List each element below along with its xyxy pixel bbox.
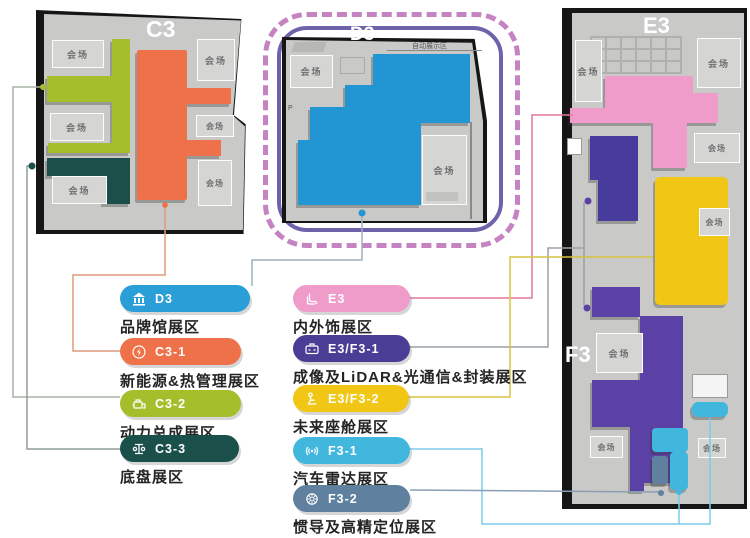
imaging-icon (303, 340, 321, 358)
legend-pill-e3-f3-2[interactable]: E3/F3-2 (293, 385, 409, 412)
venue-box: 会场 (698, 438, 726, 458)
legend-code: E3/F3-1 (328, 342, 379, 356)
venue-box: 会场 (198, 160, 232, 206)
venue-box: 会场 (699, 208, 730, 236)
e3-hall-title: E3 (643, 13, 670, 39)
legend-pill-e3[interactable]: E3 (293, 285, 410, 312)
d3-inner-wall (470, 122, 472, 219)
venue-box: 会场 (290, 55, 333, 88)
legend-label-d3: 品牌馆展区 (120, 316, 200, 337)
legend-code: E3/F3-2 (328, 392, 379, 406)
venue-box: 会场 (52, 176, 107, 204)
venue-box: 会场 (197, 39, 235, 81)
exhibition-floorplan: C3 会场 会场 会场 会场 会场 会场 D3 自动展示区 P 会场 会场 (0, 0, 750, 538)
d3-demo-area-label: 自动展示区 (412, 41, 447, 51)
d3-roof-deco (291, 42, 327, 52)
legend-label-f3-2: 惯导及高精定位展区 (293, 516, 437, 537)
legend-label-e3-f3-1: 成像及LiDAR&光通信&封装展区 (293, 366, 528, 387)
energy-icon (130, 343, 148, 361)
zone-e3-f3-1-imaging-upper (590, 136, 638, 221)
d3-parking-label: P (288, 105, 293, 112)
legend-label-e3-f3-2: 未来座舱展区 (293, 416, 389, 437)
chassis-icon (130, 440, 148, 458)
interior-trim-icon (303, 290, 321, 308)
venue-box: 会场 (196, 115, 234, 137)
f3-white-booth (692, 374, 728, 398)
zone-e3-f3-1-imaging-lower (592, 287, 683, 491)
venue-box: 会场 (52, 40, 104, 68)
c3-hall-title: C3 (146, 16, 175, 43)
legend-pill-d3[interactable]: D3 (120, 285, 250, 312)
legend-pill-f3-1[interactable]: F3-1 (293, 437, 410, 464)
powertrain-icon (130, 395, 148, 413)
legend-code: F3-2 (328, 492, 358, 506)
cockpit-icon (303, 390, 321, 408)
d3-stripe-deco (426, 192, 458, 201)
legend-code: C3-2 (155, 397, 186, 411)
museum-icon (130, 290, 148, 308)
legend-label-e3: 内外饰展区 (293, 316, 373, 337)
legend-code: E3 (328, 292, 345, 306)
legend-code: F3-1 (328, 444, 358, 458)
venue-box: 会场 (50, 113, 104, 141)
e3-white-booth (567, 138, 582, 155)
venue-box: 会场 (694, 133, 740, 163)
f3-hall-title: F3 (565, 342, 591, 368)
legend-label-c3-3: 底盘展区 (120, 466, 184, 487)
d3-hall-title: D3 (350, 24, 374, 46)
d3-booth-outline (340, 57, 365, 74)
zone-e3-f3-2-cockpit (655, 177, 728, 305)
legend-pill-c3-2[interactable]: C3-2 (120, 390, 241, 417)
legend-code: C3-1 (155, 345, 186, 359)
legend-pill-f3-2[interactable]: F3-2 (293, 485, 410, 512)
navigation-icon (303, 490, 321, 508)
venue-box: 会场 (596, 333, 643, 373)
radar-icon (303, 442, 321, 460)
legend-pill-e3-f3-1[interactable]: E3/F3-1 (293, 335, 410, 362)
legend-pill-c3-3[interactable]: C3-3 (120, 435, 239, 462)
zone-f3-2-navigation (652, 456, 668, 484)
legend-code: C3-3 (155, 442, 186, 456)
legend-pill-c3-1[interactable]: C3-1 (120, 338, 241, 365)
venue-box: 会场 (590, 436, 623, 458)
legend-code: D3 (155, 292, 173, 306)
venue-box: 会场 (575, 40, 602, 102)
venue-box: 会场 (697, 38, 741, 88)
legend-label-c3-1: 新能源&热管理展区 (120, 370, 260, 391)
